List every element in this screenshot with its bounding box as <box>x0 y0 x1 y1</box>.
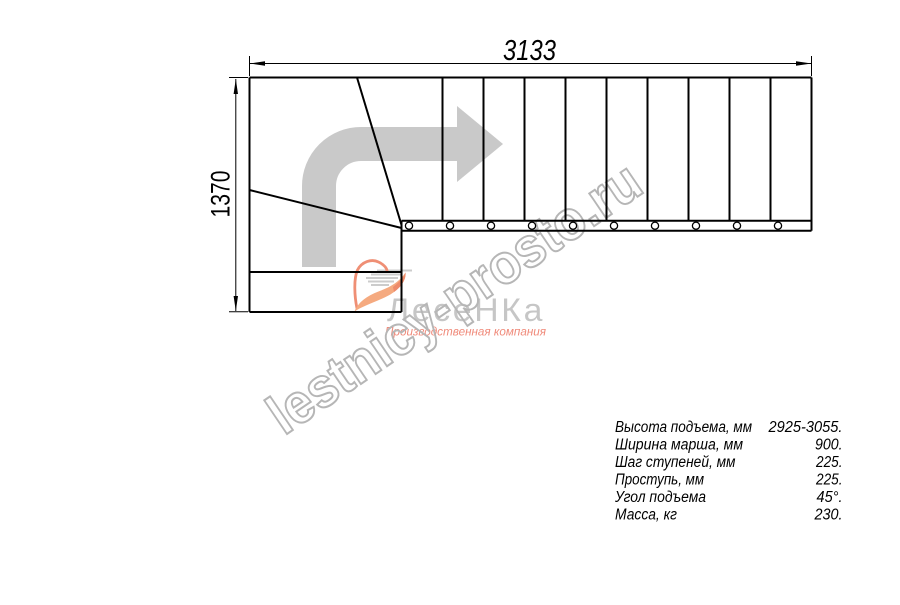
svg-text:45°.: 45°. <box>817 489 843 506</box>
svg-text:3133: 3133 <box>503 35 556 67</box>
svg-text:Проступь, мм: Проступь, мм <box>615 472 704 489</box>
svg-text:230.: 230. <box>814 507 843 524</box>
svg-text:Масса, кг: Масса, кг <box>615 507 677 524</box>
svg-text:1370: 1370 <box>206 171 236 218</box>
svg-text:2925-3055.: 2925-3055. <box>768 419 843 436</box>
svg-text:225.: 225. <box>815 472 842 489</box>
svg-text:Шаг ступеней, мм: Шаг ступеней, мм <box>615 454 736 471</box>
svg-text:Угол подъема: Угол подъема <box>614 489 706 506</box>
svg-text:Ширина марша, мм: Ширина марша, мм <box>615 437 743 454</box>
svg-text:Высота подъема, мм: Высота подъема, мм <box>615 419 752 436</box>
svg-text:900.: 900. <box>815 437 843 454</box>
svg-text:225.: 225. <box>815 454 842 471</box>
